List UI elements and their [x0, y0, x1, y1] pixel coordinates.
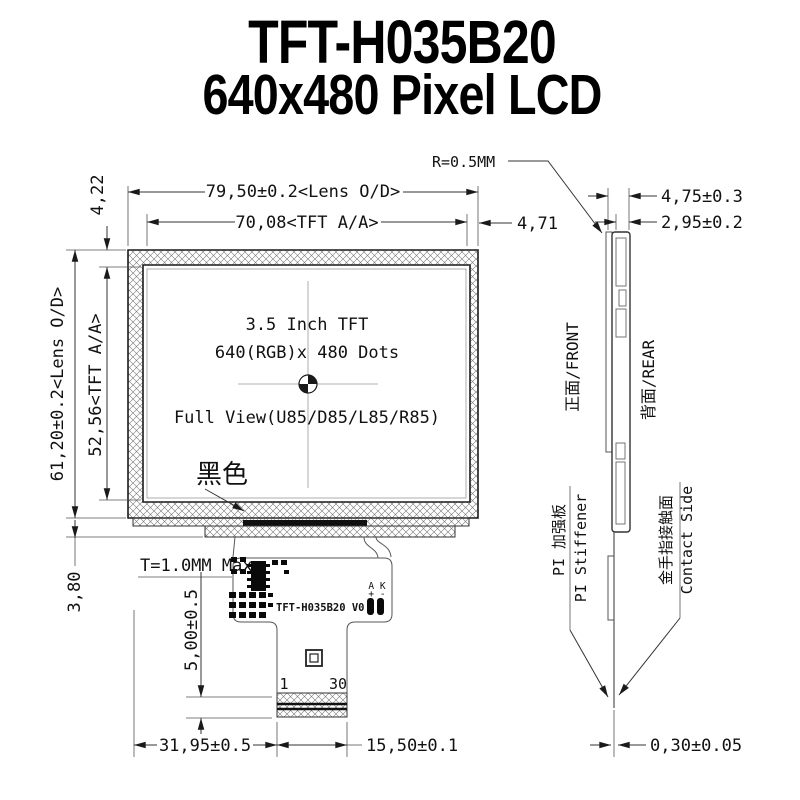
fpc-bond-bar — [243, 520, 367, 526]
glass-step-2 — [205, 526, 455, 537]
dim-fpc-tail-width: 15,50±0.1 — [366, 736, 458, 756]
side-rear-label: 背面/REAR — [639, 340, 658, 421]
contact-side-leader — [619, 618, 680, 695]
screen-size-text: 3.5 Inch TFT — [246, 315, 369, 335]
side-body — [612, 232, 630, 532]
lcd-datasheet-page: TFT-H035B20 640x480 Pixel LCD 3.5 Inch T… — [0, 0, 800, 800]
screen-resolution-text: 640(RGB)x 480 Dots — [215, 343, 399, 363]
dim-active-height: 52,56<TFT A/A> — [86, 313, 106, 456]
dim-top-margin: 4,22 — [88, 175, 108, 216]
dim-fpc-offset: 31,95±0.5 — [159, 736, 251, 756]
bezel-color-label: 黑色 — [196, 460, 248, 490]
stiffener-leader — [570, 630, 608, 697]
fpc-edge-line — [233, 537, 235, 557]
side-front-label: 正面/FRONT — [563, 322, 582, 412]
side-stiffener — [608, 556, 614, 620]
backlight-pads: A K + - — [367, 581, 386, 615]
page-title: TFT-H035B20 640x480 Pixel LCD — [202, 8, 601, 127]
dim-right-margin: 4,71 — [517, 214, 558, 234]
screen-view-text: Full View(U85/D85/L85/R85) — [174, 408, 440, 428]
contact-side-label-en: Contact Side — [678, 486, 696, 594]
dim-panel-thickness: 2,95±0.2 — [661, 213, 743, 233]
title-line2: 640x480 Pixel LCD — [202, 64, 601, 127]
dim-active-width: 70,08<TFT A/A> — [235, 213, 378, 233]
stiffener-label-cn: PI 加强板 — [550, 504, 568, 576]
logo-mark — [306, 650, 322, 666]
dim-bottom-margin: 3,80 — [65, 572, 85, 613]
dim-lens-width: 79,50±0.2<Lens O/D> — [206, 182, 400, 202]
contact-side-label-cn: 金手指接触面 — [657, 495, 675, 585]
dim-corner-radius: R=0.5MM — [432, 153, 495, 171]
pin-1-label: 1 — [279, 675, 288, 693]
dim-fpc-thickness: 0,30±0.05 — [650, 736, 742, 756]
dim-fpc-shoulder: 5,00±0.5 — [182, 589, 202, 671]
dim-lens-height: 61,20±0.2<Lens O/D> — [48, 287, 68, 481]
fpc-part-number: TFT-H035B20 V0 — [276, 602, 365, 614]
technical-drawing: TFT-H035B20 640x480 Pixel LCD 3.5 Inch T… — [0, 0, 800, 800]
centroid-symbol — [299, 375, 317, 393]
thickness-note: T=1.0MM Max — [140, 556, 253, 576]
dim-total-thickness: 4,75±0.3 — [661, 187, 743, 207]
side-lens-layer — [606, 232, 612, 452]
pin-30-label: 30 — [329, 675, 347, 693]
front-view: 3.5 Inch TFT 640(RGB)x 480 Dots Full Vie… — [128, 250, 478, 717]
stiffener-label-en: PI Stiffener — [572, 494, 590, 602]
fpc-fold-lines — [364, 537, 391, 558]
